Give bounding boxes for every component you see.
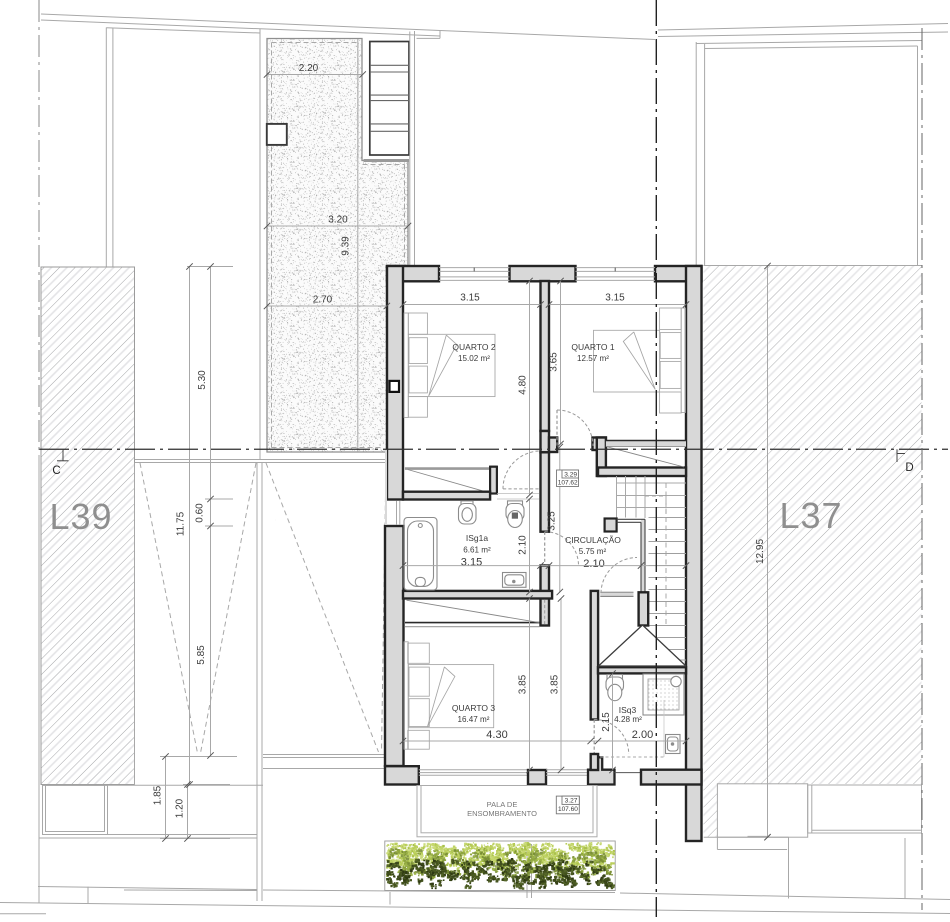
svg-text:3.15: 3.15 (605, 293, 625, 304)
svg-text:4.80: 4.80 (518, 375, 529, 395)
svg-text:ISg1a: ISg1a (466, 533, 488, 543)
svg-text:D: D (905, 462, 913, 474)
svg-text:9.39: 9.39 (341, 236, 352, 256)
svg-text:4.30: 4.30 (486, 729, 507, 741)
svg-text:3.20: 3.20 (328, 215, 348, 226)
svg-text:0.60: 0.60 (195, 503, 206, 523)
svg-text:2.70: 2.70 (313, 295, 333, 306)
svg-text:5.30: 5.30 (197, 370, 208, 390)
svg-text:ISq3: ISq3 (619, 705, 637, 715)
svg-text:ENSOMBRAMENTO: ENSOMBRAMENTO (467, 809, 537, 818)
svg-text:3.85: 3.85 (518, 674, 529, 694)
svg-text:107.60: 107.60 (558, 806, 578, 813)
svg-text:QUARTO 3: QUARTO 3 (452, 703, 495, 713)
svg-text:QUARTO 1: QUARTO 1 (571, 342, 614, 352)
svg-text:12.95: 12.95 (755, 539, 766, 564)
svg-text:CIRCULAÇÃO: CIRCULAÇÃO (565, 535, 621, 545)
svg-text:3.85: 3.85 (550, 674, 561, 694)
svg-text:2.00: 2.00 (632, 729, 653, 741)
svg-text:3.27: 3.27 (565, 798, 578, 805)
svg-text:2.15: 2.15 (601, 712, 612, 732)
svg-text:3.15: 3.15 (461, 557, 482, 569)
svg-text:2.20: 2.20 (299, 63, 319, 74)
svg-text:5.75 m²: 5.75 m² (579, 547, 607, 556)
svg-text:16.47 m²: 16.47 m² (458, 715, 490, 724)
svg-text:L37: L37 (779, 495, 842, 536)
svg-text:15.02 m²: 15.02 m² (458, 354, 490, 363)
svg-text:6.61 m²: 6.61 m² (463, 546, 491, 555)
svg-text:3.25: 3.25 (547, 511, 558, 531)
svg-text:3.29: 3.29 (564, 471, 577, 478)
svg-text:4.28 m²: 4.28 m² (614, 715, 642, 724)
svg-text:12.57 m²: 12.57 m² (577, 354, 609, 363)
svg-text:1.85: 1.85 (153, 785, 164, 805)
svg-text:5.85: 5.85 (196, 645, 207, 665)
svg-text:1.20: 1.20 (175, 798, 186, 818)
svg-text:QUARTO 2: QUARTO 2 (452, 342, 495, 352)
svg-text:2.10: 2.10 (583, 558, 604, 570)
svg-text:2.10: 2.10 (518, 535, 529, 555)
svg-text:3.65: 3.65 (549, 352, 560, 372)
svg-text:11.75: 11.75 (176, 511, 187, 536)
svg-text:L39: L39 (49, 496, 112, 537)
svg-text:PALA DE: PALA DE (487, 800, 518, 809)
svg-text:107.62: 107.62 (558, 479, 578, 486)
svg-text:3.15: 3.15 (460, 293, 480, 304)
svg-text:C: C (52, 465, 60, 477)
